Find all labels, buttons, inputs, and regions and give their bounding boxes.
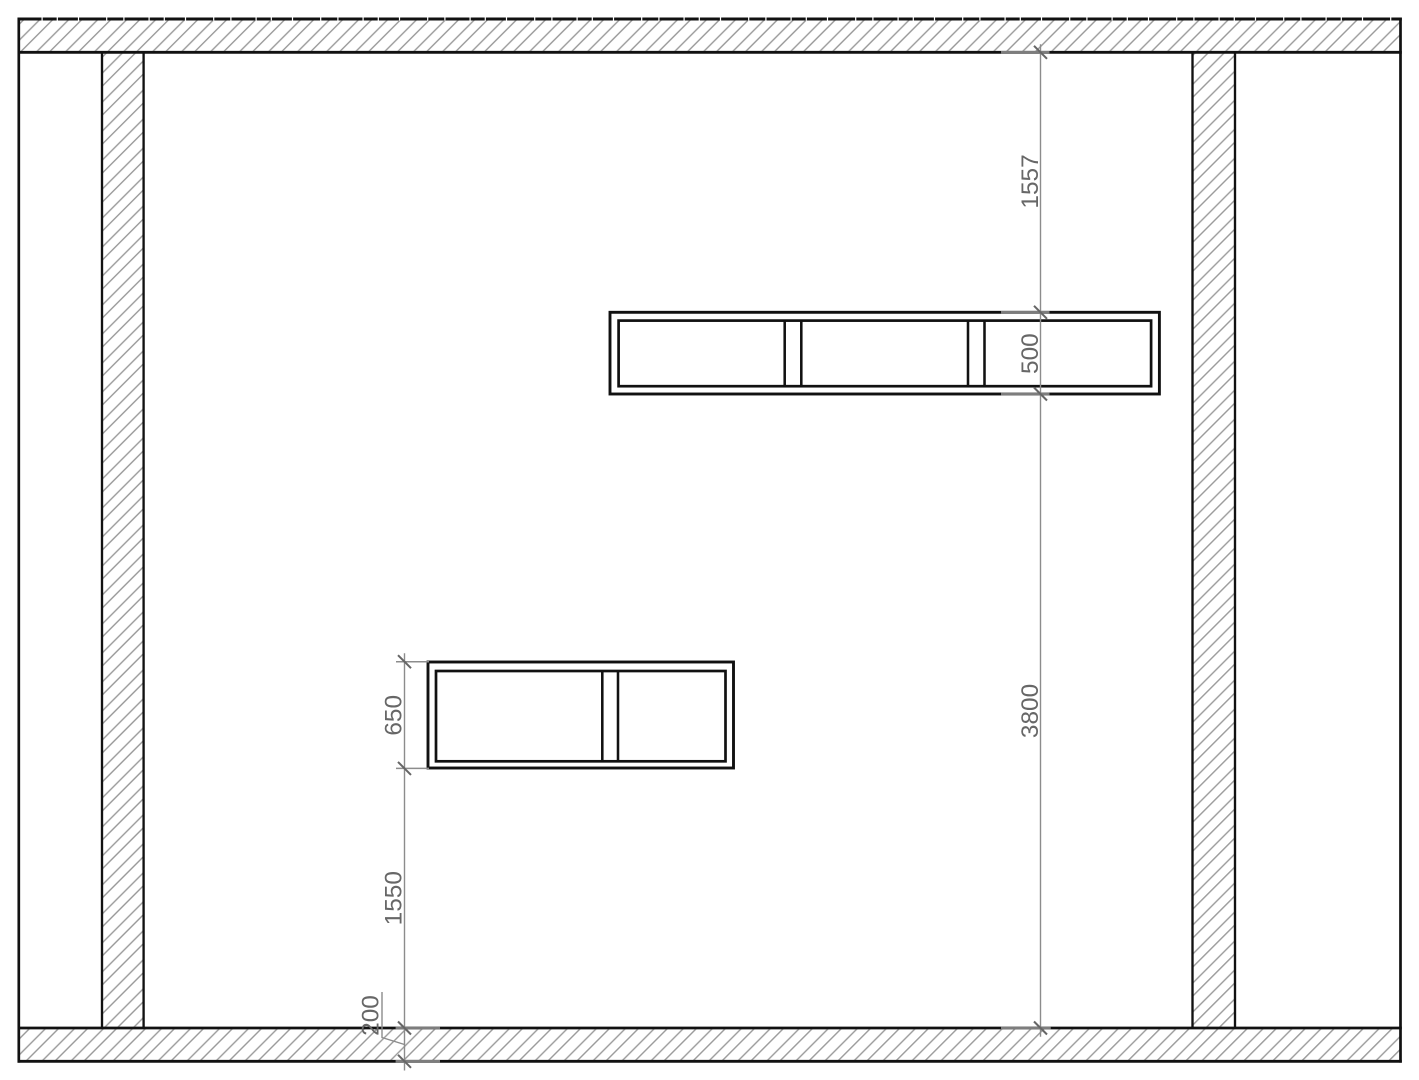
svg-text:3800: 3800 xyxy=(1017,684,1044,738)
svg-text:650: 650 xyxy=(381,695,408,736)
svg-text:500: 500 xyxy=(1017,333,1044,374)
svg-text:1557: 1557 xyxy=(1017,154,1044,208)
svg-text:1550: 1550 xyxy=(381,871,408,925)
svg-text:200: 200 xyxy=(358,995,385,1036)
